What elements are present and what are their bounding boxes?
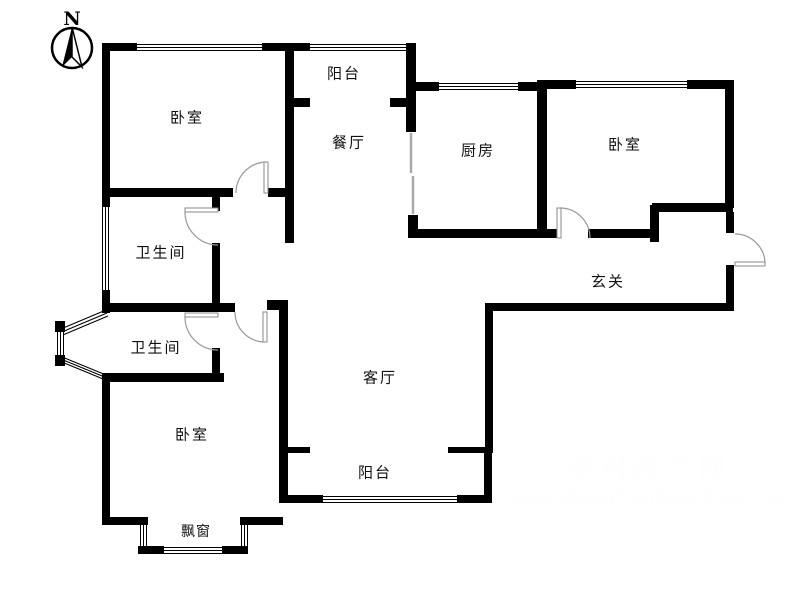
window-bedroom-top-right — [576, 82, 687, 88]
room-label-living-room: 客厅 — [363, 367, 397, 388]
walls-layer — [55, 43, 734, 554]
bay-window-bottom — [164, 548, 222, 554]
door-leaf-bedroom-bottom — [263, 312, 267, 342]
compass-north-label: N — [63, 8, 80, 30]
doors-layer — [185, 133, 765, 350]
room-label-dining-room: 餐厅 — [332, 132, 366, 153]
window-bedroom-top-left — [137, 45, 262, 51]
bay-window-right-side — [242, 524, 248, 546]
door-arc-bathroom-lower — [185, 317, 218, 350]
room-label-bedroom-top-right: 卧室 — [608, 134, 642, 155]
door-leaf-bedroom-top-left — [264, 162, 268, 193]
window-balcony-bottom — [323, 497, 457, 503]
bay-slant-upper — [62, 310, 108, 335]
window-balcony-top — [310, 45, 406, 51]
floor-plan-drawing: N — [0, 0, 800, 600]
compass-north-icon: N — [52, 8, 92, 68]
room-label-bathroom-lower: 卫生间 — [130, 337, 181, 358]
room-label-bedroom-bottom: 卧室 — [175, 424, 209, 445]
room-label-bedroom-top-left: 卧室 — [170, 107, 204, 128]
room-label-entry-hall: 玄关 — [591, 271, 625, 292]
door-leaf-bathroom-upper — [185, 208, 218, 212]
window-bathroom-upper — [103, 207, 109, 290]
floor-plan-page: N 卧室 阳台 餐厅 厨房 卧室 卫生间 卫生间 玄关 客厅 卧室 阳台 飘窗 … — [0, 0, 800, 600]
door-arc-entrance — [735, 234, 765, 264]
bay-slant-lower — [61, 357, 108, 382]
door-arc-bedroom-top-right — [560, 208, 590, 238]
door-leaf-bedroom-top-right — [557, 208, 561, 238]
door-arc-bathroom-upper — [185, 212, 218, 245]
bay-window-left-side — [141, 524, 147, 546]
room-label-bay-window: 飘窗 — [181, 521, 211, 541]
bay-window-left-vertical — [58, 332, 64, 356]
room-label-balcony-bottom: 阳台 — [358, 462, 392, 483]
room-label-balcony-top: 阳台 — [327, 63, 361, 84]
door-leaf-bathroom-lower — [185, 313, 218, 317]
sliding-door-kitchen — [411, 133, 413, 214]
door-leaf-entrance — [735, 262, 765, 266]
room-label-kitchen: 厨房 — [461, 140, 495, 161]
door-arc-bedroom-bottom — [235, 312, 265, 342]
room-label-bathroom-upper: 卫生间 — [135, 242, 186, 263]
door-arc-bedroom-top-left — [236, 162, 267, 193]
window-kitchen — [439, 84, 518, 90]
